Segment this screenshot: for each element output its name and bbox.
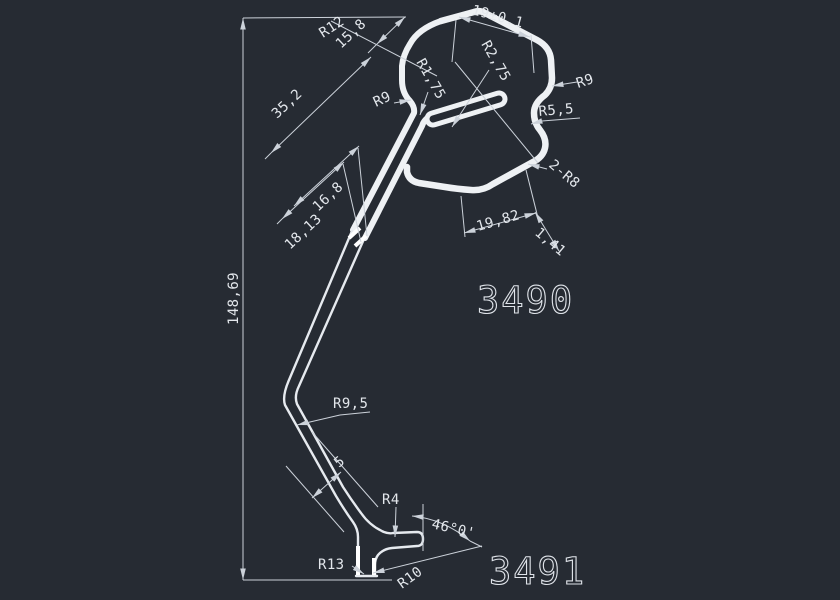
dim-r2-75: R2,75 <box>478 38 514 84</box>
dim-r10: R10 <box>395 564 426 593</box>
dim-r9-5: R9,5 <box>333 396 368 412</box>
dim-r13: R13 <box>318 557 345 573</box>
dim-18-13: 18,13 <box>282 211 325 253</box>
dim-r4: R4 <box>382 492 400 508</box>
part-foot-crimp <box>358 546 374 575</box>
part-number-lower: 3491 <box>489 550 586 593</box>
part-slot <box>433 99 499 119</box>
dim-1-41: 1,41 <box>531 225 568 260</box>
part-neck-band <box>353 21 441 238</box>
dim-r9-right: R9 <box>574 71 596 92</box>
part-numbers: 3490 3491 <box>477 279 586 593</box>
drawing-canvas[interactable]: 15,8 R12 19±0.1 R2,75 R1,75 R9 R9 R5,5 2… <box>0 0 840 600</box>
dim-r9-left: R9 <box>371 89 394 111</box>
dim-19-82: 19,82 <box>475 207 522 235</box>
dim-r1-75: R1,75 <box>413 56 449 102</box>
part-number-upper: 3490 <box>477 279 574 322</box>
cad-viewport: 15,8 R12 19±0.1 R2,75 R1,75 R9 R9 R5,5 2… <box>0 0 840 600</box>
dim-16-8: 16,8 <box>310 179 347 215</box>
dim-46deg: 46°0' <box>430 516 477 542</box>
dim-35-2: 35,2 <box>269 86 306 122</box>
dim-2-r8: 2-R8 <box>545 157 582 192</box>
dim-r5-5: R5,5 <box>538 101 575 120</box>
dim-19-tol: 19±0.1 <box>470 2 525 31</box>
dim-148-69: 148,69 <box>226 272 242 325</box>
